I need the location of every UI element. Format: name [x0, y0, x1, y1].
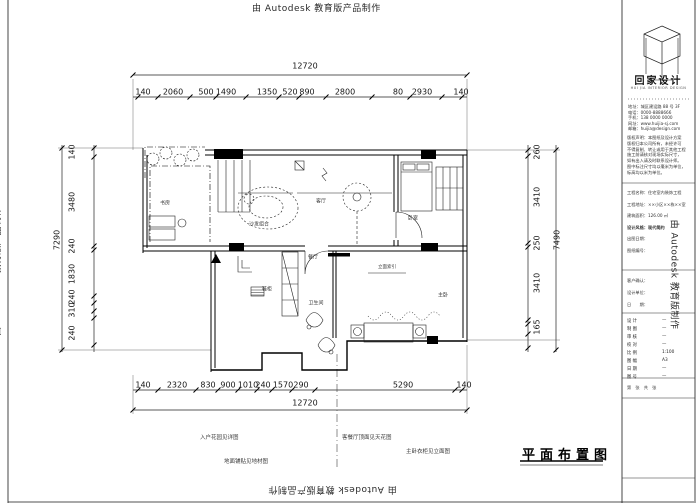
dim-top: 2930 — [412, 88, 432, 97]
field-label: 图 号 — [627, 374, 637, 380]
dim-bottom: 2320 — [167, 381, 187, 390]
dim-bottom: 5290 — [393, 381, 413, 390]
brand-name: 回家设计 — [622, 72, 695, 87]
dim-top: 2060 — [163, 88, 183, 97]
field-value: — — [662, 374, 666, 379]
dimension-lines — [62, 75, 556, 410]
dim-right: 3410 — [533, 187, 542, 207]
watermark-left: 由 Autodesk 教育版产品制作 — [0, 207, 3, 336]
plant-icon — [187, 149, 199, 161]
cad-sheet: 由 Autodesk 教育版产品制作 由 Autodesk 教育版产品制作 由 … — [0, 0, 700, 504]
field-value: — — [662, 326, 666, 331]
dining-table — [343, 183, 371, 211]
field-value: — — [662, 366, 666, 371]
floorplan-linework — [0, 0, 700, 504]
dim-right-overall: 7490 — [553, 230, 562, 250]
dim-top: 520 — [282, 88, 297, 97]
nightstand — [351, 325, 364, 338]
dim-top: 140 — [453, 88, 468, 97]
fixture — [318, 338, 335, 353]
dim-top: 2800 — [335, 88, 355, 97]
dim-right: 250 — [533, 235, 542, 250]
elevation-index-label: 立面索引 — [378, 264, 396, 270]
dim-left: 1830 — [68, 264, 77, 284]
dim-bottom: 140 — [135, 381, 150, 390]
confirm-line: 设计单位： — [627, 290, 648, 296]
dim-right: 260 — [533, 144, 542, 159]
field-label: 图 幅 — [627, 358, 637, 364]
dim-bottom: 240 — [255, 381, 270, 390]
dim-top: 1350 — [257, 88, 277, 97]
field-value: — — [662, 334, 666, 339]
wardrobe — [436, 167, 463, 210]
field-label: 制 图 — [627, 326, 637, 332]
field-label: 校 对 — [627, 342, 637, 348]
dim-left-overall: 7290 — [53, 230, 62, 250]
dim-right: 3410 — [533, 273, 542, 293]
project-line: 工程地址：××小区××栋××室 — [627, 202, 686, 208]
room-label-living: 客厅 — [316, 198, 326, 205]
plan-dashed-walls — [145, 147, 210, 242]
drawing-title: 平面布置图 — [522, 444, 612, 463]
room-label-shoe: 鞋柜 — [262, 286, 272, 293]
plan-note: 主卧衣柜见立面图 — [406, 447, 450, 455]
field-value: 1:100 — [662, 350, 674, 355]
room-label-sofa: 沙发组合 — [249, 221, 269, 228]
confirm-line: 客户确认： — [627, 278, 648, 284]
project-line: 工程名称：住宅室内装饰工程 — [627, 190, 681, 196]
project-line: 出图日期： — [627, 236, 648, 242]
dimension-ticks — [60, 73, 559, 413]
bed — [401, 162, 432, 211]
plant-icon — [147, 153, 159, 165]
dim-left: 3480 — [68, 192, 77, 212]
project-line: 建筑面积：126.00 ㎡ — [627, 213, 668, 219]
confirm-line: 日 期： — [627, 302, 648, 308]
plan-note: 客餐厅顶面见天花图 — [342, 433, 392, 441]
field-label: 日 期 — [627, 366, 637, 372]
plant-icon — [174, 154, 186, 166]
room-label-bedroom: 卧室 — [408, 215, 418, 222]
dim-left: 140 — [68, 144, 77, 159]
room-label-bath: 卫生间 — [308, 300, 323, 307]
field-label: 比 例 — [627, 350, 637, 356]
dim-top: 1490 — [216, 88, 236, 97]
contact-line: 邮箱：huijia@design.com — [628, 126, 680, 132]
dim-top: 890 — [299, 88, 314, 97]
watermark-top: 由 Autodesk 教育版产品制作 — [252, 1, 381, 14]
field-label: 设 计 — [627, 318, 637, 324]
brand-name-en: HUI JIA INTERIOR DESIGN — [622, 86, 695, 90]
dim-bottom-overall: 12720 — [292, 399, 317, 408]
plan-note: 入户花园见详图 — [200, 433, 239, 441]
dim-top: 500 — [198, 88, 213, 97]
project-line: 设计风格：现代简约 — [627, 225, 665, 231]
stair-direction-triangle — [211, 254, 221, 263]
dim-bottom: 1570 — [273, 381, 293, 390]
dim-top: 140 — [135, 88, 150, 97]
dim-bottom: 830 — [200, 381, 215, 390]
nightstand — [413, 325, 426, 338]
field-value: A3 — [662, 358, 668, 363]
field-value: — — [662, 342, 666, 347]
titleblock: 回家设计 HUI JIA INTERIOR DESIGN 地址：城区建设路 88… — [622, 0, 695, 503]
dim-top: 80 — [393, 88, 403, 97]
room-label-study: 书房 — [160, 200, 170, 207]
watermark-bottom: 由 Autodesk 教育版产品制作 — [268, 484, 397, 497]
plan-note: 地面铺贴见地材图 — [224, 457, 268, 465]
dim-bottom: 290 — [293, 381, 308, 390]
dimension-extension-lines — [58, 79, 560, 470]
dim-right: 165 — [533, 319, 542, 334]
plant-icon — [160, 147, 172, 159]
field-value: — — [662, 318, 666, 323]
titleblock-footer: 第 张 共 张 — [627, 385, 656, 391]
notice-line: 标高均以米为单位。 — [627, 170, 665, 176]
project-line: 图纸编号： — [627, 248, 648, 254]
dim-left: 240 — [68, 325, 77, 340]
field-label: 审 核 — [627, 334, 637, 340]
room-label-dining: 餐厅 — [308, 254, 318, 261]
dim-bottom: 900 — [220, 381, 235, 390]
dim-bottom: 140 — [456, 381, 471, 390]
bed — [364, 323, 413, 342]
room-label-master: 主卧 — [438, 292, 448, 299]
dim-left: 240 — [68, 238, 77, 253]
dim-top-overall: 12720 — [292, 62, 317, 71]
dim-left: 310 — [68, 302, 77, 317]
